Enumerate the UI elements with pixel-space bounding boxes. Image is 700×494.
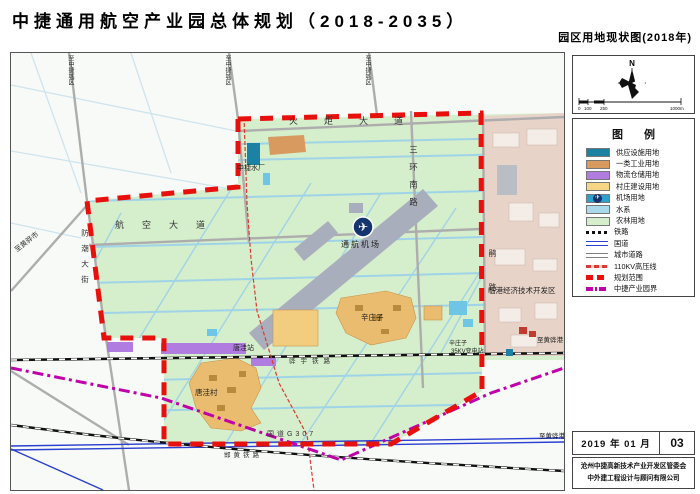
label-juan-lu: 鹃路: [488, 249, 496, 317]
airplane-icon: ✈: [353, 217, 373, 237]
compass-rose: [618, 68, 646, 99]
legend-item-farmland: 农林用地: [573, 215, 694, 226]
legend-item-supply: 供应设施用地: [573, 147, 694, 158]
legend-item-industry: 一类工业用地: [573, 158, 694, 169]
drawing-sheet: 中捷通用航空产业园总体规划（2018-2035） 园区用地现状图(2018年): [0, 0, 700, 494]
label-huoju-dadao: 火炬大道: [289, 117, 429, 126]
label-to-city-3: 至中捷城区: [364, 55, 370, 85]
legend-item-plan-boundary: 规划范围: [573, 272, 694, 283]
sheet-number: 03: [659, 432, 694, 454]
swatch-national-road: [586, 241, 608, 246]
svg-text:✈: ✈: [358, 220, 368, 234]
label-to-huanghua-port-2: 至黄骅港: [539, 434, 565, 441]
swatch-supply: [586, 148, 610, 157]
swatch-logistics: [586, 171, 610, 180]
swatch-plan-boundary: [586, 275, 608, 280]
scale-bar: 0 100 250 1000m: [578, 98, 684, 111]
label-g307: 国道G307: [267, 431, 316, 438]
label-xinzhuangzi: 辛庄子: [361, 314, 384, 322]
drawing-subtitle: 园区用地现状图(2018年): [558, 29, 692, 45]
swatch-water: [586, 205, 610, 214]
swatch-farmland: [586, 217, 610, 226]
label-substation-name: 辛庄子: [449, 341, 467, 347]
legend-item-city-road: 城市道路: [573, 250, 694, 261]
legend: 图 例 供应设施用地 一类工业用地 物流仓储用地 村庄建设用地 ✈ 机场用地 水…: [572, 118, 695, 297]
label-huayu-tielu: 骅宇铁路: [289, 359, 335, 366]
label-jichang: 通航机场: [341, 241, 381, 249]
swatch-village: [586, 182, 610, 191]
swatch-industry: [586, 160, 610, 169]
legend-item-airport: ✈ 机场用地: [573, 193, 694, 204]
swatch-city-road: [586, 253, 608, 258]
swatch-powerline: [586, 265, 608, 268]
org-name-2: 中外建工程设计与顾问有限公司: [587, 473, 679, 485]
dev-zone-gray-parcel: [497, 165, 517, 195]
label-hanhuang-tielu: 邯黄铁路: [224, 453, 262, 460]
label-to-city-1: 至中捷城区: [67, 55, 73, 85]
legend-item-park-boundary: 中捷产业园界: [573, 284, 694, 295]
legend-item-national-road: 国道: [573, 238, 694, 249]
legend-title: 图 例: [573, 119, 694, 147]
road-north-3: [369, 53, 377, 115]
org-name-1: 沧州中捷高新技术产业开发区管委会: [581, 461, 687, 473]
label-lingang-zone: 临港经济技术开发区: [488, 287, 556, 295]
road-blue-sw: [11, 449, 103, 490]
label-to-city-2: 至中捷城区: [224, 55, 230, 85]
label-hangkong-dadao: 航空大道: [115, 221, 223, 230]
date-sheet-box: 2019 年 01 月 03: [572, 431, 695, 455]
svg-text:250: 250: [600, 106, 608, 111]
north-label: N: [629, 59, 635, 68]
industry-parcel: [268, 135, 306, 155]
svg-text:0: 0: [578, 106, 581, 111]
legend-item-village: 村庄建设用地: [573, 181, 694, 192]
svg-text:1000m: 1000m: [670, 106, 684, 111]
label-shuichang: 中捷水厂: [237, 165, 265, 172]
label-to-huanghua-port-1: 至黄骅港: [537, 338, 563, 345]
legend-item-railway: 铁路: [573, 227, 694, 238]
swatch-park-boundary: [586, 287, 608, 291]
label-tangwa-cun: 唐洼村: [195, 389, 218, 397]
organization-box: 沧州中捷高新技术产业开发区管委会 中外建工程设计与顾问有限公司: [572, 457, 695, 489]
substation-parcel: [506, 349, 513, 356]
map-graphics: ✈: [11, 53, 564, 490]
label-tangwa-zhan: 唐洼站: [233, 345, 254, 352]
page-title: 中捷通用航空产业园总体规划（2018-2035）: [12, 7, 468, 32]
svg-text:100: 100: [584, 106, 592, 111]
swatch-railway: [586, 231, 608, 234]
drawing-date: 2019 年 01 月: [573, 432, 659, 454]
label-fangchao-dajie: 防潮大街: [81, 229, 89, 291]
compass-scale-box: N 0 100 250 1000m: [572, 55, 695, 114]
lingang-dev-zone: [484, 113, 564, 356]
water-plant-parcel: [247, 143, 260, 165]
road-southwest: [11, 371, 129, 445]
label-sanhuan-nanlu: 三环南路: [409, 145, 418, 215]
label-substation: 35KV变电站: [451, 349, 484, 355]
legend-item-logistics: 物流仓储用地: [573, 170, 694, 181]
legend-item-water: 水系: [573, 204, 694, 215]
landuse-map: ✈ 至中捷城区 至中捷城区 至中捷城区 火炬大道 航空大道 三环南路 防潮大街 …: [10, 52, 565, 491]
airplane-mini-icon: ✈: [593, 194, 602, 203]
swatch-airport: ✈: [586, 194, 610, 203]
legend-item-powerline: 110KV高压线: [573, 261, 694, 272]
